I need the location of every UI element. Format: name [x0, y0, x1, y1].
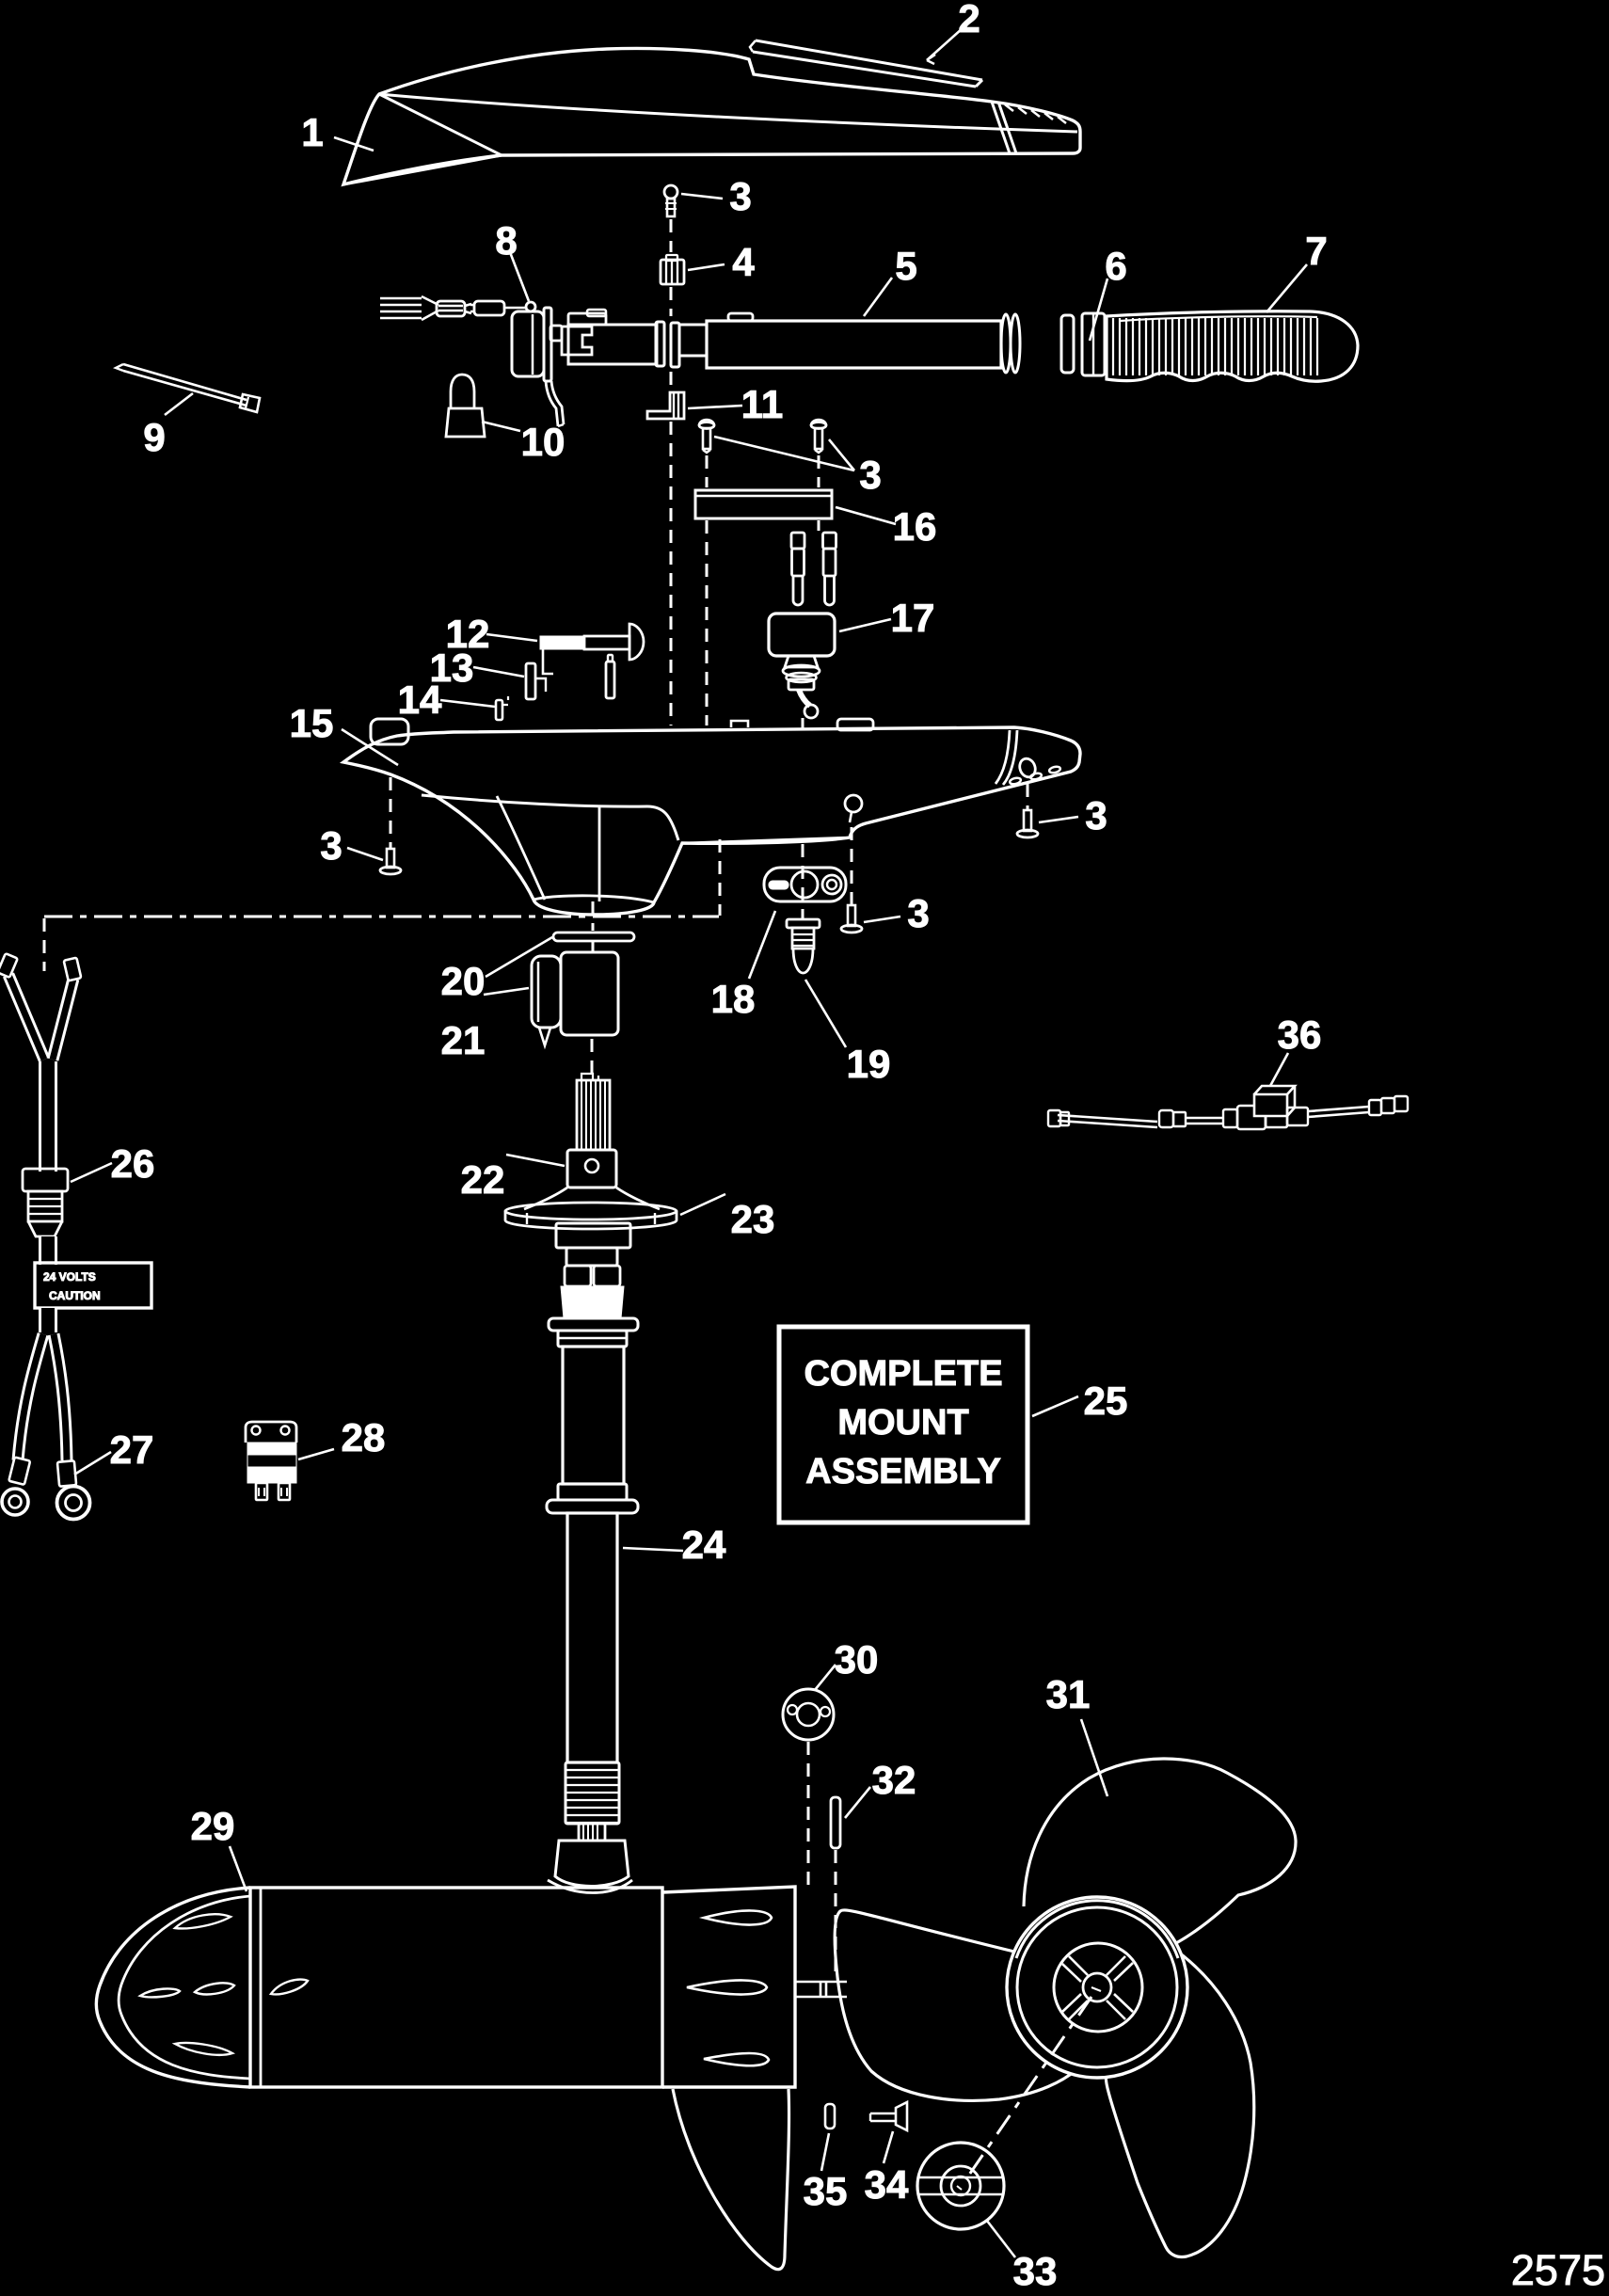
svg-text:9: 9 — [143, 415, 165, 459]
svg-text:23: 23 — [731, 1197, 775, 1241]
svg-text:22: 22 — [461, 1157, 505, 1202]
svg-text:18: 18 — [711, 977, 756, 1021]
svg-text:25: 25 — [1084, 1379, 1128, 1423]
svg-text:35: 35 — [804, 2169, 848, 2213]
svg-text:10: 10 — [521, 420, 566, 464]
svg-text:11: 11 — [741, 382, 783, 426]
svg-text:15: 15 — [290, 701, 334, 745]
svg-text:36: 36 — [1278, 1012, 1322, 1057]
svg-text:2575: 2575 — [1511, 2246, 1605, 2294]
svg-text:CAUTION: CAUTION — [49, 1289, 101, 1302]
svg-text:4: 4 — [732, 240, 755, 284]
svg-text:COMPLETE: COMPLETE — [804, 1354, 1002, 1394]
svg-text:24 VOLTS: 24 VOLTS — [43, 1270, 96, 1284]
svg-text:3: 3 — [859, 453, 881, 497]
svg-text:26: 26 — [111, 1141, 155, 1186]
svg-text:21: 21 — [441, 1018, 486, 1062]
svg-text:31: 31 — [1046, 1672, 1091, 1716]
svg-text:2: 2 — [958, 0, 980, 40]
svg-text:3: 3 — [320, 823, 342, 868]
svg-text:8: 8 — [495, 218, 517, 263]
svg-text:29: 29 — [191, 1804, 235, 1848]
svg-text:32: 32 — [872, 1758, 916, 1802]
svg-text:27: 27 — [110, 1427, 154, 1472]
svg-text:19: 19 — [847, 1042, 891, 1086]
svg-text:5: 5 — [895, 244, 916, 288]
svg-text:1: 1 — [301, 110, 323, 154]
svg-text:30: 30 — [835, 1637, 879, 1682]
svg-text:MOUNT: MOUNT — [837, 1403, 968, 1443]
svg-text:28: 28 — [342, 1415, 386, 1459]
svg-text:34: 34 — [865, 2162, 909, 2207]
svg-text:33: 33 — [1013, 2249, 1058, 2293]
svg-text:ASSEMBLY: ASSEMBLY — [805, 1452, 1001, 1491]
svg-text:20: 20 — [441, 959, 486, 1003]
svg-text:3: 3 — [907, 891, 929, 935]
svg-text:3: 3 — [1085, 793, 1107, 837]
svg-text:24: 24 — [682, 1523, 726, 1567]
svg-text:6: 6 — [1105, 244, 1126, 288]
svg-text:7: 7 — [1305, 229, 1327, 273]
svg-text:17: 17 — [891, 596, 935, 640]
svg-text:3: 3 — [729, 174, 751, 218]
svg-text:14: 14 — [398, 678, 442, 722]
svg-text:16: 16 — [893, 504, 937, 549]
